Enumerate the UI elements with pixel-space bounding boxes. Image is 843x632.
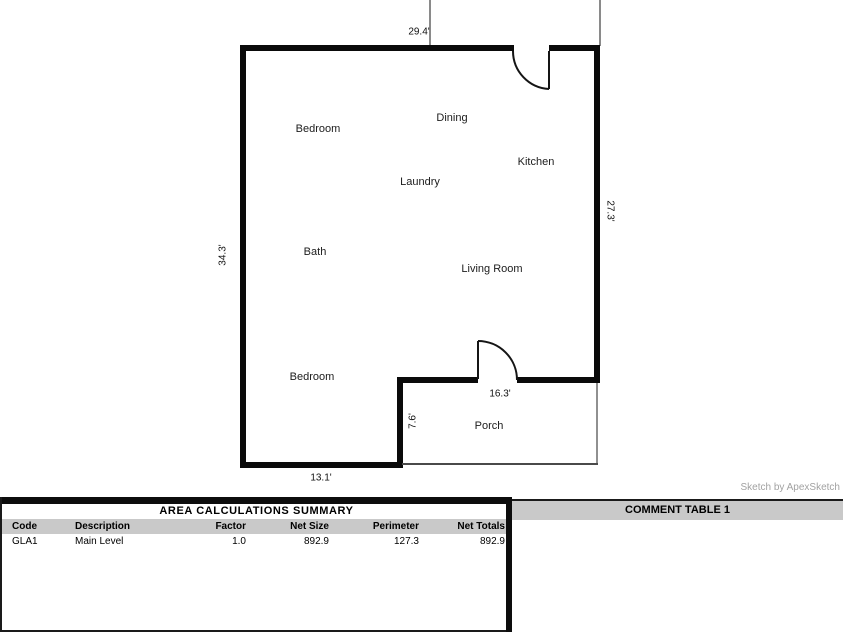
cell-net-totals: 892.9 (419, 534, 505, 549)
column-header-net-totals: Net Totals (419, 519, 505, 534)
area-calculations-table: AREA CALCULATIONS SUMMARY Code Descripti… (0, 497, 511, 632)
column-header-description: Description (75, 519, 207, 534)
room-label-bath: Bath (304, 246, 327, 258)
table-top-bar (2, 497, 511, 504)
room-label-laundry: Laundry (400, 176, 440, 188)
area-table-title: AREA CALCULATIONS SUMMARY (2, 504, 511, 519)
cell-net-size: 892.9 (246, 534, 329, 549)
dimension-bottom-width: 13.1' (310, 473, 331, 484)
cell-code: GLA1 (12, 534, 75, 549)
room-label-dining: Dining (436, 112, 467, 124)
sketch-credit: Sketch by ApexSketch (700, 482, 840, 493)
room-label-bedroom-2: Bedroom (290, 371, 335, 383)
room-label-bedroom-1: Bedroom (296, 123, 341, 135)
dimension-porch-height: 7.6' (408, 413, 419, 429)
dimension-top-width: 29.4' (408, 27, 429, 38)
comment-table-title: COMMENT TABLE 1 (512, 501, 843, 520)
sketch-report-page: Bedroom Dining Kitchen Laundry Bath Livi… (0, 0, 843, 632)
dimension-right-height: 27.3' (605, 200, 616, 221)
cell-perimeter: 127.3 (329, 534, 419, 549)
area-table-header-row: Code Description Factor Net Size Perimet… (2, 519, 511, 534)
room-label-kitchen: Kitchen (518, 156, 555, 168)
dimension-porch-width: 16.3' (489, 389, 510, 400)
room-label-porch: Porch (475, 420, 504, 432)
dimension-left-height: 34.3' (218, 244, 229, 265)
column-header-perimeter: Perimeter (329, 519, 419, 534)
room-label-living-room: Living Room (461, 263, 522, 275)
column-header-code: Code (12, 519, 75, 534)
table-row: GLA1 Main Level 1.0 892.9 127.3 892.9 (2, 534, 511, 549)
cell-factor: 1.0 (207, 534, 246, 549)
column-header-factor: Factor (207, 519, 246, 534)
exterior-walls (240, 45, 600, 468)
door-swing-icon (513, 51, 549, 89)
door-swing-icon (478, 341, 517, 380)
cell-description: Main Level (75, 534, 207, 549)
column-header-net-size: Net Size (246, 519, 329, 534)
comment-table: COMMENT TABLE 1 (512, 499, 843, 632)
